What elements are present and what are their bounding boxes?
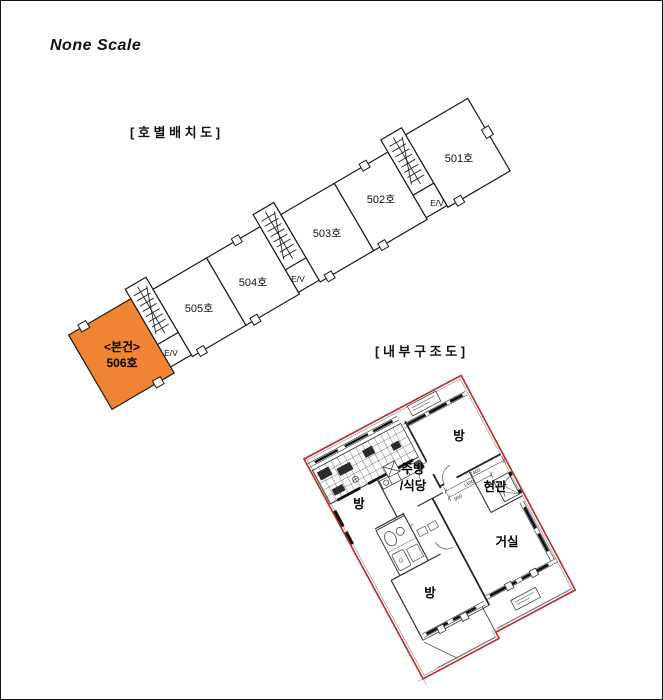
room-label-kitchen: 주방 [401,461,425,476]
unit-504-label: 504호 [239,276,267,289]
room-label-bedroom-left: 방 [353,496,365,511]
elevator-label-3: E/V [164,348,178,358]
room-label-entry: 현관 [483,479,507,494]
elevator-label-2: E/V [291,274,305,284]
room-label-bedroom-top: 방 [453,428,465,443]
unit-502-label: 502호 [367,193,395,206]
floor-plan-drawing: 2400 1400 900 [300,375,581,687]
room-label-kitchen-line2: /식당 [400,478,427,493]
unit-505-label: 505호 [185,302,213,315]
unit-506-label: 506호 [106,356,137,370]
unit-layout-drawing: 501호 502호 503호 504호 505호 E/V E/V E/V <본건… [63,89,518,412]
drawing-canvas: 501호 502호 503호 504호 505호 E/V E/V E/V <본건… [1,1,663,700]
elevator-label-1: E/V [430,198,444,208]
unit-503-label: 503호 [313,227,341,240]
room-label-living: 거실 [495,534,518,549]
unit-501-label: 501호 [445,152,473,165]
document-page: None Scale [ 호 별 배 치 도 ] [ 내 부 구 조 도 ] [0,0,663,700]
subject-marker-label: <본건> [104,339,140,354]
room-label-bedroom-bottom: 방 [424,585,436,600]
